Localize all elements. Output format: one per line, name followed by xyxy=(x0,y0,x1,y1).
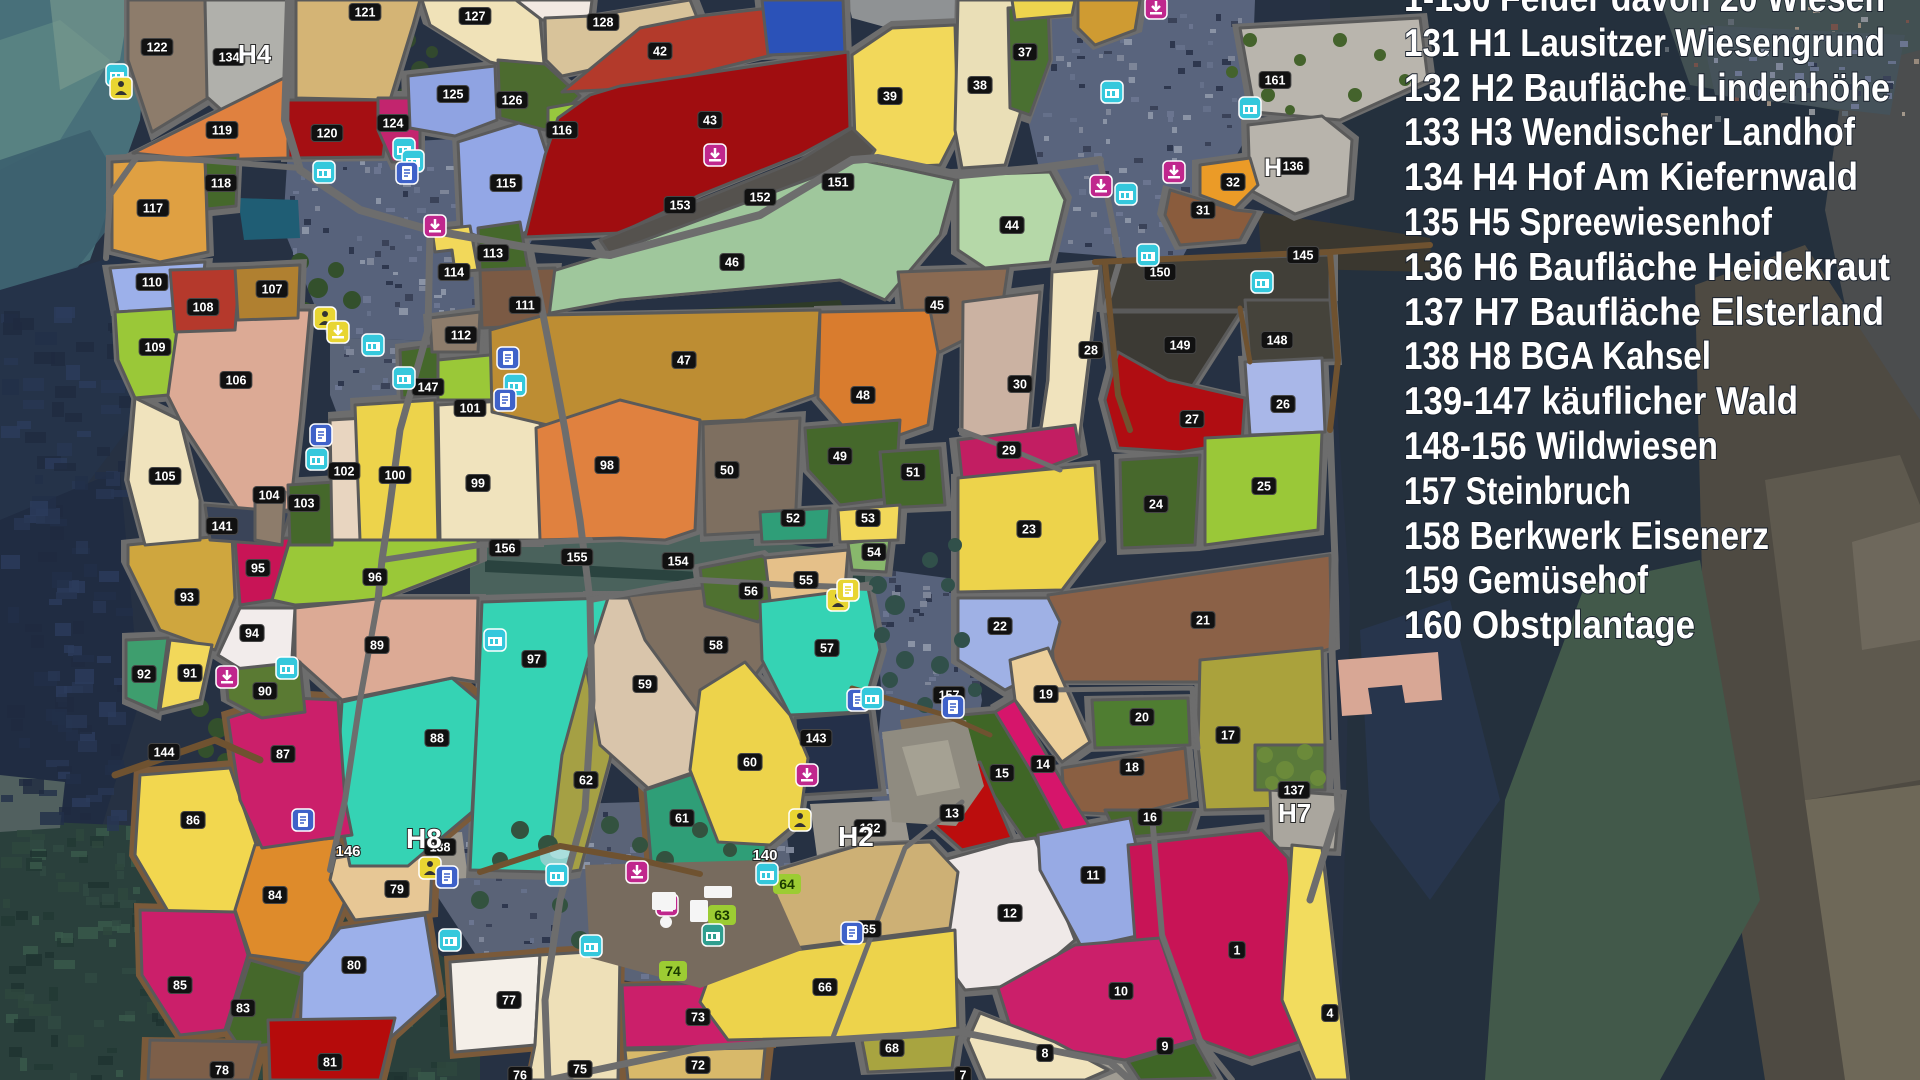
svg-text:27: 27 xyxy=(1185,413,1199,427)
svg-text:24: 24 xyxy=(1149,498,1163,512)
svg-text:152: 152 xyxy=(750,191,771,205)
svg-text:136 H6 Baufläche Heidekraut: 136 H6 Baufläche Heidekraut xyxy=(1404,246,1890,289)
svg-text:93: 93 xyxy=(180,591,194,605)
svg-text:140: 140 xyxy=(752,847,777,864)
svg-text:85: 85 xyxy=(173,979,187,993)
svg-text:37: 37 xyxy=(1018,46,1032,60)
svg-text:146: 146 xyxy=(335,843,360,860)
svg-text:56: 56 xyxy=(744,585,758,599)
svg-text:45: 45 xyxy=(930,299,944,313)
svg-text:4: 4 xyxy=(1327,1007,1334,1021)
svg-text:109: 109 xyxy=(145,341,166,355)
svg-text:76: 76 xyxy=(513,1069,527,1080)
svg-text:51: 51 xyxy=(906,466,920,480)
svg-text:14: 14 xyxy=(1036,758,1050,772)
svg-text:57: 57 xyxy=(820,642,834,656)
svg-text:20: 20 xyxy=(1135,711,1149,725)
svg-text:96: 96 xyxy=(368,571,382,585)
svg-text:139-147 käuflicher Wald: 139-147 käuflicher Wald xyxy=(1404,380,1798,423)
svg-text:43: 43 xyxy=(703,114,717,128)
svg-text:59: 59 xyxy=(638,678,652,692)
svg-text:64: 64 xyxy=(779,876,795,892)
svg-text:90: 90 xyxy=(258,685,272,699)
svg-text:79: 79 xyxy=(390,883,404,897)
svg-text:54: 54 xyxy=(867,546,881,560)
svg-text:101: 101 xyxy=(460,402,481,416)
svg-text:150: 150 xyxy=(1150,266,1171,280)
svg-text:103: 103 xyxy=(294,497,315,511)
svg-text:149: 149 xyxy=(1170,339,1191,353)
svg-text:143: 143 xyxy=(806,732,827,746)
svg-text:65: 65 xyxy=(862,923,876,937)
svg-text:61: 61 xyxy=(675,812,689,826)
svg-text:141: 141 xyxy=(212,520,233,534)
svg-text:122: 122 xyxy=(147,41,168,55)
svg-text:153: 153 xyxy=(670,199,691,213)
svg-text:100: 100 xyxy=(385,469,406,483)
svg-text:158 Berkwerk Eisenerz: 158 Berkwerk Eisenerz xyxy=(1404,515,1769,558)
svg-text:94: 94 xyxy=(245,627,259,641)
svg-text:92: 92 xyxy=(137,668,151,682)
svg-text:17: 17 xyxy=(1221,729,1235,743)
svg-text:118: 118 xyxy=(211,177,231,191)
svg-text:159 Gemüsehof: 159 Gemüsehof xyxy=(1404,559,1649,602)
svg-text:154: 154 xyxy=(668,555,689,569)
svg-text:11: 11 xyxy=(1086,869,1099,883)
svg-text:H2: H2 xyxy=(838,821,874,852)
svg-text:48: 48 xyxy=(856,389,870,403)
svg-text:H8: H8 xyxy=(406,823,442,854)
svg-text:134 H4 Hof Am Kiefernwald: 134 H4 Hof Am Kiefernwald xyxy=(1404,156,1858,199)
svg-text:111: 111 xyxy=(515,299,535,313)
svg-text:157 Steinbruch: 157 Steinbruch xyxy=(1404,470,1631,513)
svg-text:39: 39 xyxy=(883,90,897,104)
svg-text:119: 119 xyxy=(212,124,232,138)
svg-text:148-156 Wildwiesen: 148-156 Wildwiesen xyxy=(1404,425,1718,468)
svg-text:1: 1 xyxy=(1234,944,1241,958)
svg-text:97: 97 xyxy=(527,653,541,667)
svg-text:128: 128 xyxy=(593,16,614,30)
svg-text:8: 8 xyxy=(1042,1047,1049,1061)
svg-text:86: 86 xyxy=(186,814,200,828)
svg-text:91: 91 xyxy=(183,667,197,681)
svg-text:112: 112 xyxy=(451,329,471,343)
svg-text:60: 60 xyxy=(743,756,757,770)
svg-text:32: 32 xyxy=(1226,176,1240,190)
svg-text:31: 31 xyxy=(1196,204,1210,218)
svg-text:120: 120 xyxy=(317,127,338,141)
svg-text:H7: H7 xyxy=(1278,798,1311,828)
svg-text:117: 117 xyxy=(143,202,163,216)
svg-text:98: 98 xyxy=(600,459,614,473)
svg-text:127: 127 xyxy=(465,10,486,24)
svg-text:42: 42 xyxy=(653,45,667,59)
svg-text:74: 74 xyxy=(665,963,681,979)
svg-text:81: 81 xyxy=(323,1056,337,1070)
svg-text:121: 121 xyxy=(355,6,376,20)
svg-text:66: 66 xyxy=(818,981,832,995)
svg-text:131 H1 Lausitzer Wiesengrund: 131 H1 Lausitzer Wiesengrund xyxy=(1404,22,1885,65)
svg-text:78: 78 xyxy=(215,1064,229,1078)
svg-text:22: 22 xyxy=(993,620,1007,634)
svg-text:148: 148 xyxy=(1267,334,1288,348)
svg-text:116: 116 xyxy=(552,124,572,138)
svg-text:95: 95 xyxy=(251,562,265,576)
svg-text:50: 50 xyxy=(720,464,734,478)
svg-text:12: 12 xyxy=(1003,907,1017,921)
svg-text:106: 106 xyxy=(226,374,247,388)
svg-text:107: 107 xyxy=(262,283,283,297)
svg-text:72: 72 xyxy=(691,1059,705,1073)
svg-text:77: 77 xyxy=(502,994,516,1008)
svg-text:55: 55 xyxy=(799,574,813,588)
svg-text:137: 137 xyxy=(1284,784,1305,798)
svg-text:18: 18 xyxy=(1125,761,1139,775)
svg-text:132 H2 Baufläche Lindenhöhe: 132 H2 Baufläche Lindenhöhe xyxy=(1404,67,1890,110)
svg-text:21: 21 xyxy=(1196,614,1210,628)
svg-text:104: 104 xyxy=(259,489,280,503)
svg-text:113: 113 xyxy=(483,247,503,261)
svg-text:134: 134 xyxy=(219,51,240,65)
svg-text:7: 7 xyxy=(960,1069,967,1080)
svg-text:80: 80 xyxy=(347,959,361,973)
svg-text:23: 23 xyxy=(1022,523,1036,537)
svg-text:89: 89 xyxy=(370,639,384,653)
svg-text:9: 9 xyxy=(1162,1040,1169,1054)
svg-text:136: 136 xyxy=(1283,160,1304,174)
svg-text:29: 29 xyxy=(1002,444,1016,458)
svg-text:155: 155 xyxy=(567,551,588,565)
svg-text:46: 46 xyxy=(725,256,739,270)
svg-text:151: 151 xyxy=(828,176,849,190)
svg-text:30: 30 xyxy=(1013,378,1027,392)
svg-text:63: 63 xyxy=(714,907,730,923)
svg-text:88: 88 xyxy=(430,732,444,746)
svg-text:68: 68 xyxy=(885,1042,899,1056)
svg-text:53: 53 xyxy=(861,512,875,526)
svg-text:99: 99 xyxy=(471,477,485,491)
svg-text:25: 25 xyxy=(1257,480,1271,494)
svg-text:1-130 Felder davon 20 Wiesen: 1-130 Felder davon 20 Wiesen xyxy=(1404,0,1885,20)
svg-text:124: 124 xyxy=(383,117,404,131)
svg-text:15: 15 xyxy=(995,767,1009,781)
svg-text:H: H xyxy=(1264,154,1282,182)
svg-text:26: 26 xyxy=(1276,398,1290,412)
svg-text:44: 44 xyxy=(1005,219,1019,233)
svg-text:144: 144 xyxy=(154,746,175,760)
svg-text:108: 108 xyxy=(193,301,214,315)
svg-text:105: 105 xyxy=(155,470,176,484)
svg-text:13: 13 xyxy=(945,807,959,821)
svg-text:28: 28 xyxy=(1084,344,1098,358)
svg-text:62: 62 xyxy=(579,774,593,788)
svg-text:10: 10 xyxy=(1114,985,1128,999)
svg-text:19: 19 xyxy=(1039,688,1053,702)
svg-text:137 H7 Baufläche Elsterland: 137 H7 Baufläche Elsterland xyxy=(1404,291,1884,334)
svg-text:138 H8 BGA Kahsel: 138 H8 BGA Kahsel xyxy=(1404,335,1711,378)
svg-text:52: 52 xyxy=(786,512,800,526)
svg-text:110: 110 xyxy=(142,276,162,290)
svg-text:16: 16 xyxy=(1143,811,1157,825)
svg-text:83: 83 xyxy=(236,1002,250,1016)
svg-text:160 Obstplantage: 160 Obstplantage xyxy=(1404,604,1695,647)
svg-text:73: 73 xyxy=(691,1011,705,1025)
svg-text:49: 49 xyxy=(833,450,847,464)
svg-text:147: 147 xyxy=(418,381,439,395)
svg-text:126: 126 xyxy=(502,94,523,108)
svg-text:156: 156 xyxy=(495,542,516,556)
svg-text:135 H5 Spreewiesenhof: 135 H5 Spreewiesenhof xyxy=(1404,201,1773,244)
svg-text:58: 58 xyxy=(709,639,723,653)
svg-text:84: 84 xyxy=(268,889,282,903)
svg-text:114: 114 xyxy=(444,266,464,280)
svg-text:38: 38 xyxy=(973,79,987,93)
svg-text:145: 145 xyxy=(1293,249,1314,263)
svg-text:47: 47 xyxy=(677,354,691,368)
svg-text:87: 87 xyxy=(276,748,290,762)
svg-text:115: 115 xyxy=(496,177,516,191)
svg-text:H4: H4 xyxy=(238,39,272,69)
svg-text:161: 161 xyxy=(1265,74,1286,88)
svg-text:125: 125 xyxy=(443,88,464,102)
svg-text:133 H3 Wendischer Landhof: 133 H3 Wendischer Landhof xyxy=(1404,111,1856,154)
svg-text:75: 75 xyxy=(573,1063,587,1077)
svg-text:102: 102 xyxy=(334,465,355,479)
